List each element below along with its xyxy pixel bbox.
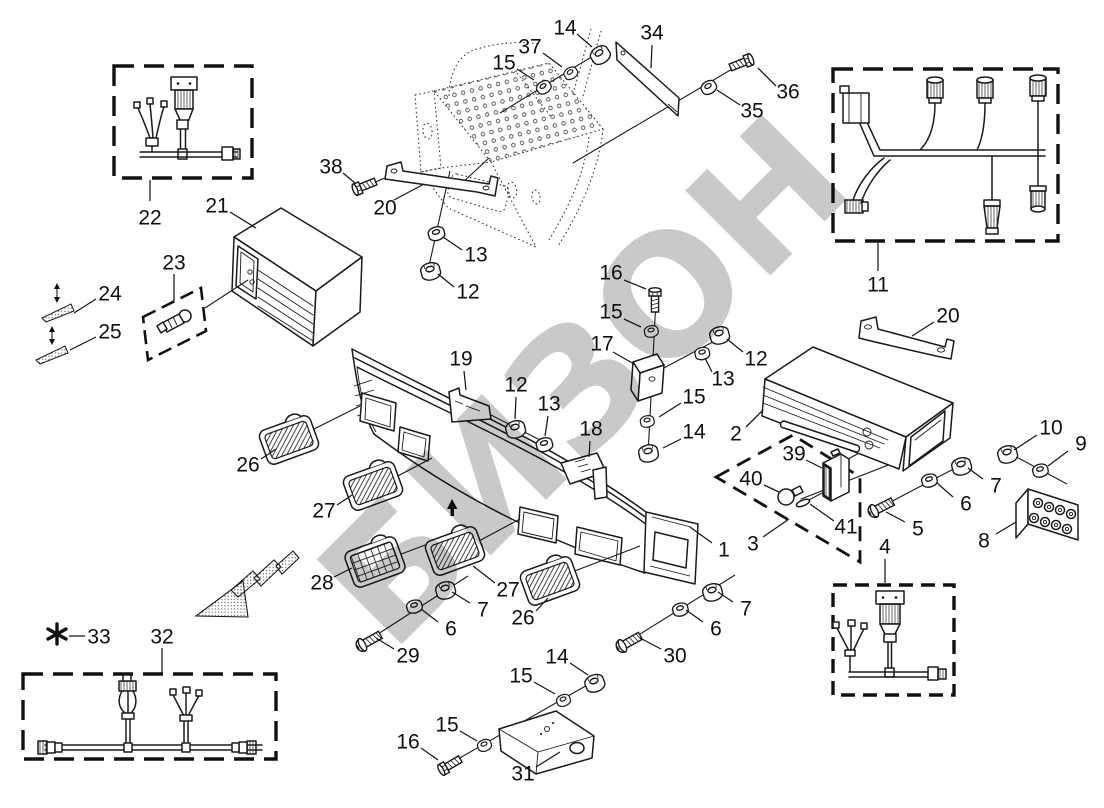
- callout-13: 13: [711, 368, 734, 391]
- callout-38: 38: [319, 156, 342, 179]
- callout-8: 8: [978, 530, 990, 553]
- leader-line-14: [577, 34, 592, 47]
- leader-line-16: [421, 748, 438, 760]
- wedge-24: [42, 283, 74, 322]
- contact-41: [795, 498, 810, 508]
- lamp-26: [256, 409, 321, 466]
- bracket-31-assembly: [436, 672, 606, 776]
- leader-line-30: [640, 638, 661, 649]
- callout-35: 35: [740, 100, 763, 123]
- callout-11: 11: [867, 274, 889, 297]
- callout-12: 12: [504, 374, 527, 397]
- washer-6: [920, 472, 938, 488]
- leader-line-2: [746, 410, 763, 427]
- leader-line-36: [758, 68, 776, 86]
- callout-25: 25: [98, 321, 121, 344]
- callout-7: 7: [990, 475, 1002, 498]
- callout-17: 17: [590, 333, 613, 356]
- callout-9: 9: [1075, 433, 1087, 456]
- kit-box-4: [833, 585, 954, 695]
- leader-line-7: [968, 468, 983, 479]
- callout-26: 26: [511, 607, 534, 630]
- callout-21: 21: [205, 195, 228, 218]
- callout-15: 15: [435, 714, 458, 737]
- screw-5: [866, 495, 896, 519]
- leader-line-9: [1048, 451, 1068, 466]
- callout-16: 16: [599, 262, 622, 285]
- wiring-harness-4: [833, 591, 946, 680]
- leader-line-15: [460, 731, 477, 741]
- nut-7: [950, 456, 973, 477]
- washer-9: [1031, 462, 1049, 478]
- callout-14: 14: [553, 17, 577, 40]
- bolt-38: [351, 176, 378, 196]
- callout-22: 22: [138, 207, 161, 230]
- bulb-40: [778, 489, 794, 505]
- lamp-housing-21: [232, 208, 362, 346]
- callout-12: 12: [744, 348, 767, 371]
- leader-line-15: [534, 682, 555, 694]
- wedge-25: [36, 326, 68, 364]
- callout-16: 16: [396, 731, 419, 754]
- callout-27: 27: [312, 500, 335, 523]
- screw-30: [614, 630, 644, 655]
- callout-2: 2: [730, 423, 742, 446]
- leader-line-38: [343, 173, 355, 183]
- leader-line-34: [651, 45, 652, 68]
- callout-7: 7: [740, 598, 752, 621]
- leader-line-14: [663, 439, 681, 448]
- callout-14: 14: [682, 421, 706, 444]
- leader-line-41: [810, 504, 834, 521]
- callout-20: 20: [936, 305, 959, 328]
- callout-26: 26: [236, 454, 259, 477]
- leader-line-40: [764, 485, 779, 492]
- leader-line-20: [394, 184, 424, 200]
- callout-32: 32: [150, 626, 173, 649]
- leader-line-39: [806, 460, 822, 468]
- callout-29: 29: [396, 645, 419, 668]
- callout-15: 15: [599, 301, 622, 324]
- callout-28: 28: [310, 572, 333, 595]
- callout-41: 41: [834, 516, 857, 539]
- callout-15: 15: [492, 52, 515, 75]
- callout-39: 39: [782, 443, 805, 466]
- nut-12: [419, 261, 442, 282]
- leader-line-10: [1014, 435, 1037, 450]
- leader-line-6: [937, 483, 953, 497]
- washer-37: [562, 65, 580, 82]
- callout-6: 6: [960, 493, 972, 516]
- leader-line-20: [912, 322, 934, 336]
- callout-1: 1: [718, 539, 730, 562]
- leader-line-8: [996, 522, 1016, 534]
- callout-40: 40: [739, 468, 762, 491]
- washer-35: [699, 78, 719, 97]
- direction-arrow: [196, 551, 299, 617]
- nut-10: [996, 444, 1019, 465]
- callout-6: 6: [710, 618, 722, 641]
- leader-line-12: [438, 274, 454, 287]
- leader-line-25: [70, 337, 96, 350]
- leader-line-14: [570, 663, 588, 675]
- callout-5: 5: [912, 518, 924, 541]
- callout-37: 37: [518, 36, 541, 59]
- callout-14: 14: [545, 646, 569, 669]
- leader-line-24: [74, 299, 96, 313]
- wiring-harness-32: [38, 675, 262, 754]
- callout-6: 6: [445, 618, 457, 641]
- bolt-36: [728, 53, 755, 73]
- bolt-16: [436, 754, 463, 776]
- washer-6: [671, 601, 689, 617]
- callout-10: 10: [1039, 417, 1062, 440]
- callout-20: 20: [373, 197, 396, 220]
- kit-box-32: [23, 674, 276, 759]
- connector-block-8: [1016, 489, 1078, 540]
- diagram-canvas: БИЗОН 2221232425382013121537143435361116…: [0, 0, 1104, 808]
- callout-18: 18: [579, 418, 602, 441]
- callout-36: 36: [776, 81, 799, 104]
- callout-13: 13: [464, 244, 487, 267]
- leader-line-5: [886, 512, 905, 522]
- leader-line-3: [763, 519, 789, 537]
- callout-13: 13: [537, 393, 560, 416]
- callout-31: 31: [511, 763, 534, 786]
- nut-14: [583, 672, 607, 694]
- callout-24: 24: [98, 283, 122, 306]
- wiring-harness-22: [134, 77, 240, 160]
- nut-7: [701, 582, 724, 603]
- kit-box-22: [114, 66, 252, 178]
- leader-line-13: [443, 237, 462, 250]
- callout-34: 34: [640, 22, 664, 45]
- callout-27: 27: [496, 579, 519, 602]
- callout-19: 19: [449, 348, 472, 371]
- leader-line-21: [230, 212, 256, 228]
- footnote-asterisk: [48, 624, 66, 644]
- parts-diagram-page: БИЗОН 2221232425382013121537143435361116…: [0, 0, 1104, 808]
- callout-15: 15: [509, 665, 532, 688]
- lamp-fasteners-right: [614, 575, 735, 655]
- callout-4: 4: [879, 536, 891, 559]
- callout-3: 3: [747, 533, 759, 556]
- callout-7: 7: [477, 599, 489, 622]
- callout-12: 12: [456, 281, 479, 304]
- callout-23: 23: [162, 252, 185, 275]
- callout-33: 33: [87, 626, 110, 649]
- callout-30: 30: [663, 645, 686, 668]
- leader-line-6: [686, 610, 703, 622]
- callout-15: 15: [682, 386, 705, 409]
- washer-13: [427, 225, 446, 242]
